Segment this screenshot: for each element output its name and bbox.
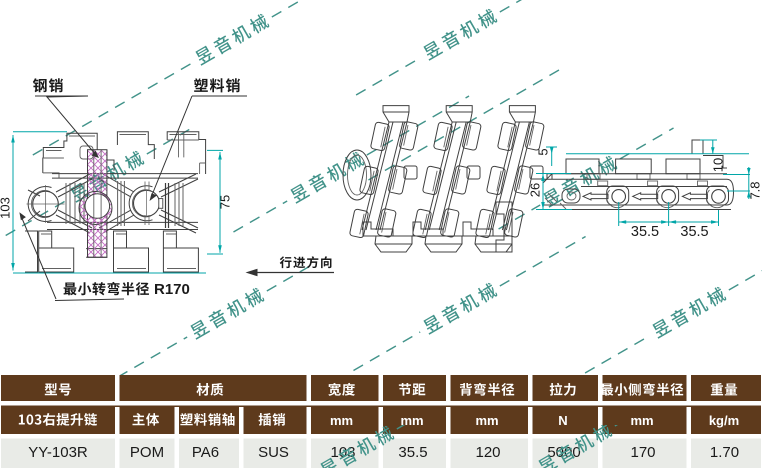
svg-text:120: 120 bbox=[475, 444, 500, 461]
svg-text:YY-103R: YY-103R bbox=[28, 444, 88, 461]
svg-text:mm: mm bbox=[330, 413, 353, 428]
svg-text:R170: R170 bbox=[154, 281, 190, 298]
svg-text:35.5: 35.5 bbox=[680, 224, 708, 240]
svg-text:170: 170 bbox=[630, 444, 655, 461]
svg-text:7.8: 7.8 bbox=[747, 181, 762, 199]
svg-text:103: 103 bbox=[0, 197, 12, 219]
svg-text:5: 5 bbox=[535, 148, 550, 155]
svg-text:POM: POM bbox=[130, 444, 164, 461]
svg-text:35.5: 35.5 bbox=[631, 224, 659, 240]
svg-text:SUS: SUS bbox=[258, 444, 289, 461]
svg-text:mm: mm bbox=[475, 413, 498, 428]
svg-text:75: 75 bbox=[217, 195, 232, 209]
svg-text:35.5: 35.5 bbox=[398, 444, 427, 461]
svg-text:N: N bbox=[558, 413, 567, 428]
svg-text:kg/m: kg/m bbox=[709, 413, 739, 428]
svg-text:PA6: PA6 bbox=[192, 444, 219, 461]
svg-text:mm: mm bbox=[630, 413, 653, 428]
svg-text:26: 26 bbox=[527, 183, 542, 197]
svg-text:1.70: 1.70 bbox=[710, 444, 739, 461]
svg-text:mm: mm bbox=[400, 413, 423, 428]
svg-text:10: 10 bbox=[710, 158, 725, 172]
